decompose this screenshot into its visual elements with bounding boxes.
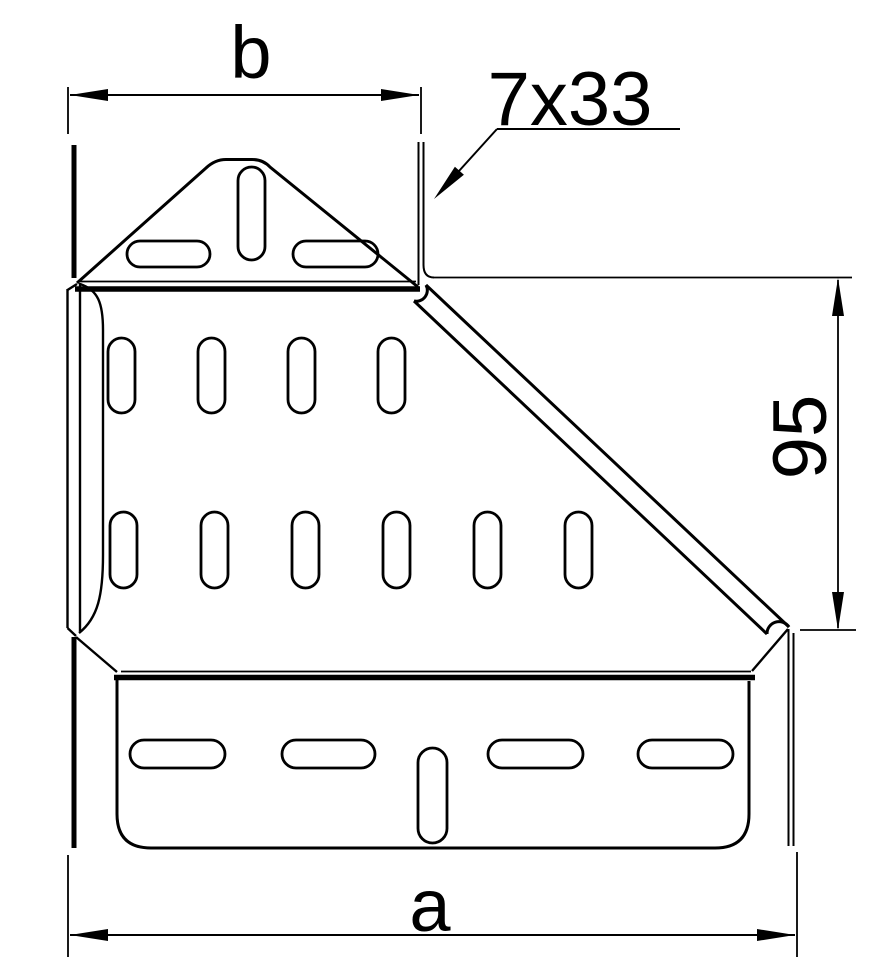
- dimension-95-label: 95: [758, 395, 843, 480]
- drawing-stage: b 7x33 95 a: [0, 0, 891, 960]
- dimension-b-label: b: [230, 11, 271, 94]
- technical-drawing: b 7x33 95 a: [0, 0, 891, 960]
